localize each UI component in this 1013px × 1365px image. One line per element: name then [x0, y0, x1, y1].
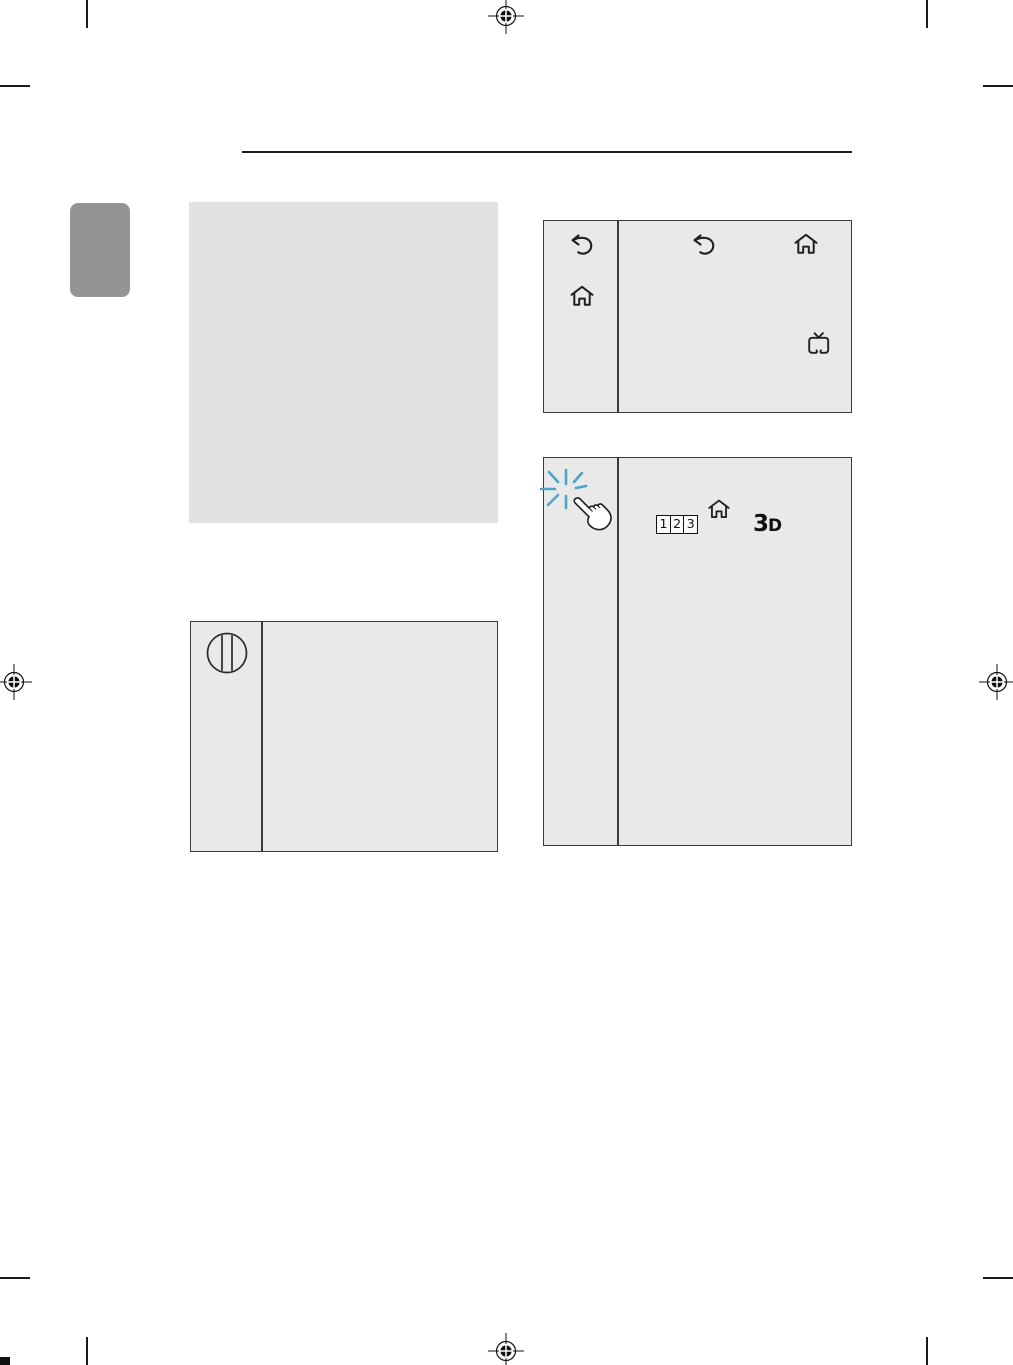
panel-divider: [617, 221, 619, 412]
tv-icon: [804, 331, 834, 357]
jog-button-icon: [205, 631, 249, 675]
crop-mark-bottom-right-horizontal: [983, 1277, 1013, 1279]
magic-remote-panel: 1 2 3 3 D: [543, 457, 852, 846]
pointing-hand-icon: [536, 474, 656, 564]
crop-mark-top-right-vertical: [926, 0, 928, 28]
crop-mark-bottom-left-vertical: [86, 1337, 88, 1365]
registration-crosshair-icon: [977, 662, 1013, 702]
manual-page: 1 2 3 3 D: [0, 0, 1013, 1365]
chapter-tab-marker: [70, 203, 130, 297]
crop-mark-top-left-horizontal: [0, 85, 30, 87]
home-icon: [707, 498, 731, 520]
back-icon: [691, 233, 717, 257]
panel-divider: [261, 622, 263, 851]
registration-crosshair-icon: [486, 0, 526, 36]
crop-mark-bottom-left-horizontal: [0, 1277, 30, 1279]
digit-key-3: 3: [683, 515, 698, 534]
empty-gray-block: [189, 202, 498, 523]
crop-mark-bottom-right-vertical: [926, 1337, 928, 1365]
3d-logo: 3 D: [753, 513, 782, 536]
crop-mark-top-right-horizontal: [983, 85, 1013, 87]
registration-crosshair-icon: [486, 1331, 526, 1365]
3d-logo-dee: D: [768, 518, 782, 536]
digit-keys: 1 2 3: [656, 515, 697, 534]
horizontal-section-rule: [242, 151, 852, 153]
3d-logo-three: 3: [753, 513, 768, 536]
ink-mark: [0, 1357, 10, 1365]
jog-button-panel: [190, 621, 498, 852]
crop-mark-top-left-vertical: [86, 0, 88, 28]
home-icon: [569, 284, 595, 308]
remote-buttons-panel: [543, 220, 852, 413]
home-icon: [793, 232, 819, 256]
back-icon: [569, 233, 595, 257]
registration-crosshair-icon: [0, 662, 34, 702]
